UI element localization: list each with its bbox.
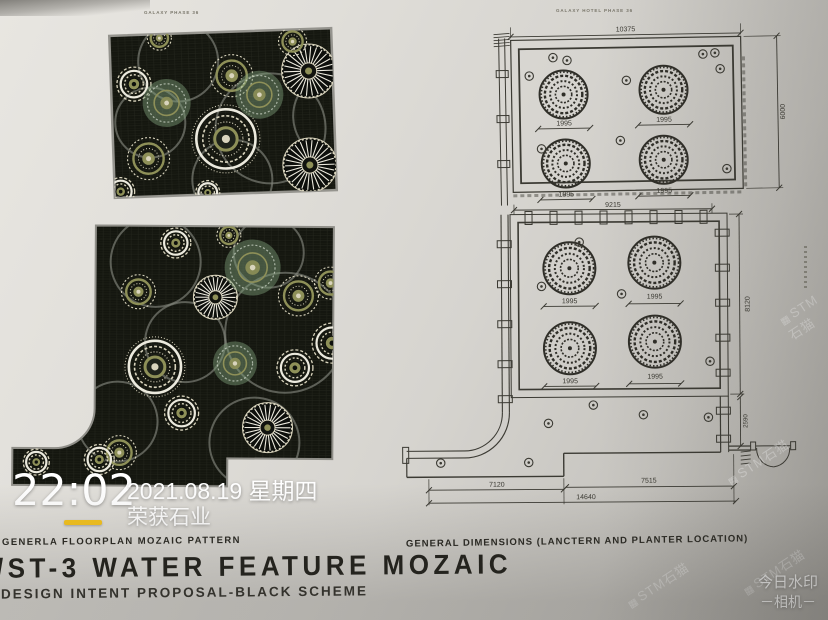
dim-10375: 10375 — [616, 26, 636, 33]
right-page-header: GALAXY HOTEL PHASE 36 — [556, 8, 633, 13]
mosaic-pattern-rendering-2 — [7, 221, 341, 493]
sheet-subtitle: DESIGN INTENT PROPOSAL-BLACK SCHEME — [1, 583, 368, 601]
dim-2590: 2590 — [742, 414, 749, 428]
dim-7120: 7120 — [489, 482, 505, 489]
stock-watermark: ▩STM石猫 — [623, 557, 693, 612]
dim-planter-7: 1995 — [562, 378, 578, 385]
dim-planter-5: 1995 — [562, 298, 578, 305]
dim-planter-4: 1995 — [656, 188, 672, 195]
dim-planter-2: 1995 — [656, 117, 672, 124]
left-page-header: GALAXY PHASE 36 — [144, 10, 199, 15]
sheet-title: /ST-3 WATER FEATURE MOZAIC — [0, 548, 512, 585]
dim-14640: 14640 — [576, 494, 596, 501]
right-caption: GENERAL DIMENSIONS (LANCTERN AND PLANTER… — [406, 533, 748, 549]
upper-dimension-plan: 10375 6000 1995 1995 1995 1995 — [488, 15, 809, 221]
photo-corner-shadow — [0, 0, 150, 16]
left-caption: GENERLA FLOORPLAN MOZAIC PATTERN — [2, 535, 241, 548]
watermark-time: 22:02 — [12, 466, 136, 516]
faint-vertical-marking — [804, 246, 807, 288]
watermark-underline — [64, 520, 102, 525]
watermark-company: 荣获石业 — [127, 501, 211, 531]
dim-8120: 8120 — [745, 296, 752, 312]
dim-planter-6: 1995 — [647, 294, 663, 301]
dim-planter-8: 1995 — [647, 374, 663, 381]
dim-7515: 7515 — [641, 478, 657, 485]
photographed-design-document: GALAXY PHASE 36 GALAXY HOTEL PHASE 36 — [0, 0, 828, 620]
mosaic-pattern-rendering-1 — [107, 26, 339, 200]
dim-9215: 9215 — [605, 202, 621, 209]
dim-planter-3: 1995 — [558, 191, 574, 198]
dim-6000: 6000 — [780, 104, 787, 120]
watermark-app-subtitle: －相机－ — [758, 593, 818, 612]
dim-planter-1: 1995 — [556, 120, 572, 127]
